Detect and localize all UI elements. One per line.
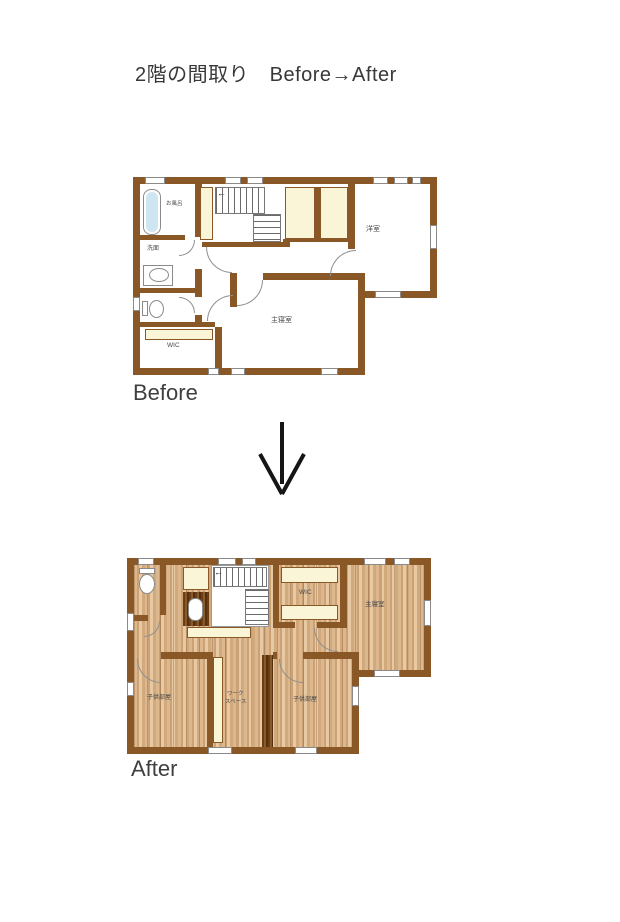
window bbox=[218, 558, 236, 565]
window bbox=[424, 600, 431, 626]
wall bbox=[127, 747, 359, 754]
window bbox=[138, 558, 154, 565]
window bbox=[145, 177, 165, 184]
wall bbox=[215, 327, 222, 368]
window bbox=[231, 368, 245, 375]
bathtub-water bbox=[146, 192, 158, 232]
washbasin-bowl bbox=[149, 268, 169, 282]
closet bbox=[320, 187, 348, 239]
closet bbox=[183, 567, 209, 590]
wall bbox=[160, 565, 166, 615]
room-label-wic: WIC bbox=[299, 589, 312, 596]
window bbox=[364, 558, 386, 565]
door-arc bbox=[207, 295, 233, 321]
before-caption: Before bbox=[133, 380, 198, 406]
wall bbox=[340, 565, 347, 622]
window bbox=[374, 670, 400, 677]
closet bbox=[281, 567, 338, 583]
window bbox=[127, 613, 134, 631]
window bbox=[225, 177, 241, 184]
door-arc bbox=[179, 240, 195, 256]
wall bbox=[358, 273, 365, 375]
page-title: 2階の間取り Before→After bbox=[135, 58, 397, 87]
room-label-master-bedroom: 主寝室 bbox=[365, 601, 385, 608]
wall bbox=[207, 652, 213, 747]
wall bbox=[161, 652, 213, 659]
wall bbox=[273, 565, 279, 626]
window bbox=[352, 686, 359, 706]
room-label-work-space-line2: スペース bbox=[225, 699, 246, 705]
room-label-master-bedroom: 主寝室 bbox=[271, 317, 292, 325]
room-label-wic: WIC bbox=[167, 342, 180, 349]
wall bbox=[352, 659, 359, 754]
toilet-icon bbox=[139, 574, 155, 594]
door-arc bbox=[237, 280, 263, 306]
stairs-lower-flight bbox=[253, 214, 281, 242]
window bbox=[295, 747, 317, 754]
door-arc bbox=[330, 250, 356, 276]
room-label-kids-room-right: 子供部屋 bbox=[293, 697, 317, 704]
closet bbox=[213, 657, 223, 743]
door-arc bbox=[179, 297, 195, 313]
room-label-western-room: 洋室 bbox=[366, 226, 380, 234]
window bbox=[412, 177, 421, 184]
window bbox=[321, 368, 338, 375]
window bbox=[208, 747, 232, 754]
toilet-icon bbox=[149, 300, 164, 318]
closet bbox=[281, 605, 338, 620]
window bbox=[430, 225, 437, 249]
window bbox=[242, 558, 256, 565]
window bbox=[127, 682, 134, 696]
window bbox=[133, 297, 140, 311]
wood-floor bbox=[134, 670, 352, 747]
room-label-bath: お風呂 bbox=[166, 201, 183, 207]
window bbox=[373, 177, 388, 184]
wall bbox=[133, 177, 437, 184]
room-label-work-space-line1: ワーク bbox=[227, 691, 244, 697]
closet bbox=[285, 187, 315, 239]
wall bbox=[273, 652, 277, 659]
wall bbox=[133, 177, 140, 375]
floor-plan-after: ← bbox=[127, 558, 431, 754]
window bbox=[394, 558, 410, 565]
closet bbox=[187, 627, 251, 638]
room-label-washroom: 洗面 bbox=[147, 246, 159, 253]
door-arc bbox=[206, 247, 232, 273]
wall bbox=[348, 184, 355, 249]
wall bbox=[303, 652, 359, 659]
work-counter bbox=[262, 655, 273, 747]
after-caption: After bbox=[131, 756, 177, 782]
transition-down-arrow-icon bbox=[256, 420, 308, 498]
window bbox=[247, 177, 263, 184]
toilet-tank bbox=[142, 301, 148, 316]
closet bbox=[145, 329, 213, 340]
stairs-direction-arrow-icon: ← bbox=[217, 189, 226, 198]
window bbox=[208, 368, 219, 375]
window bbox=[394, 177, 408, 184]
washbasin-icon bbox=[188, 598, 203, 621]
room-label-kids-room-left: 子供部屋 bbox=[147, 695, 171, 702]
closet bbox=[200, 187, 213, 240]
window bbox=[375, 291, 401, 298]
wall bbox=[195, 269, 202, 297]
bathtub-icon bbox=[143, 189, 161, 235]
floor-plan-page: 2階の間取り Before→After ← bbox=[0, 0, 620, 922]
stairs-direction-arrow-icon: ← bbox=[214, 568, 223, 577]
wall bbox=[127, 558, 134, 754]
wall bbox=[140, 322, 215, 327]
wall bbox=[140, 288, 195, 293]
wall bbox=[273, 622, 295, 628]
stairs-lower-flight bbox=[245, 589, 269, 625]
floor-plan-before: ← お風呂 洗面 WIC 主寝室 洋室 bbox=[133, 177, 437, 375]
